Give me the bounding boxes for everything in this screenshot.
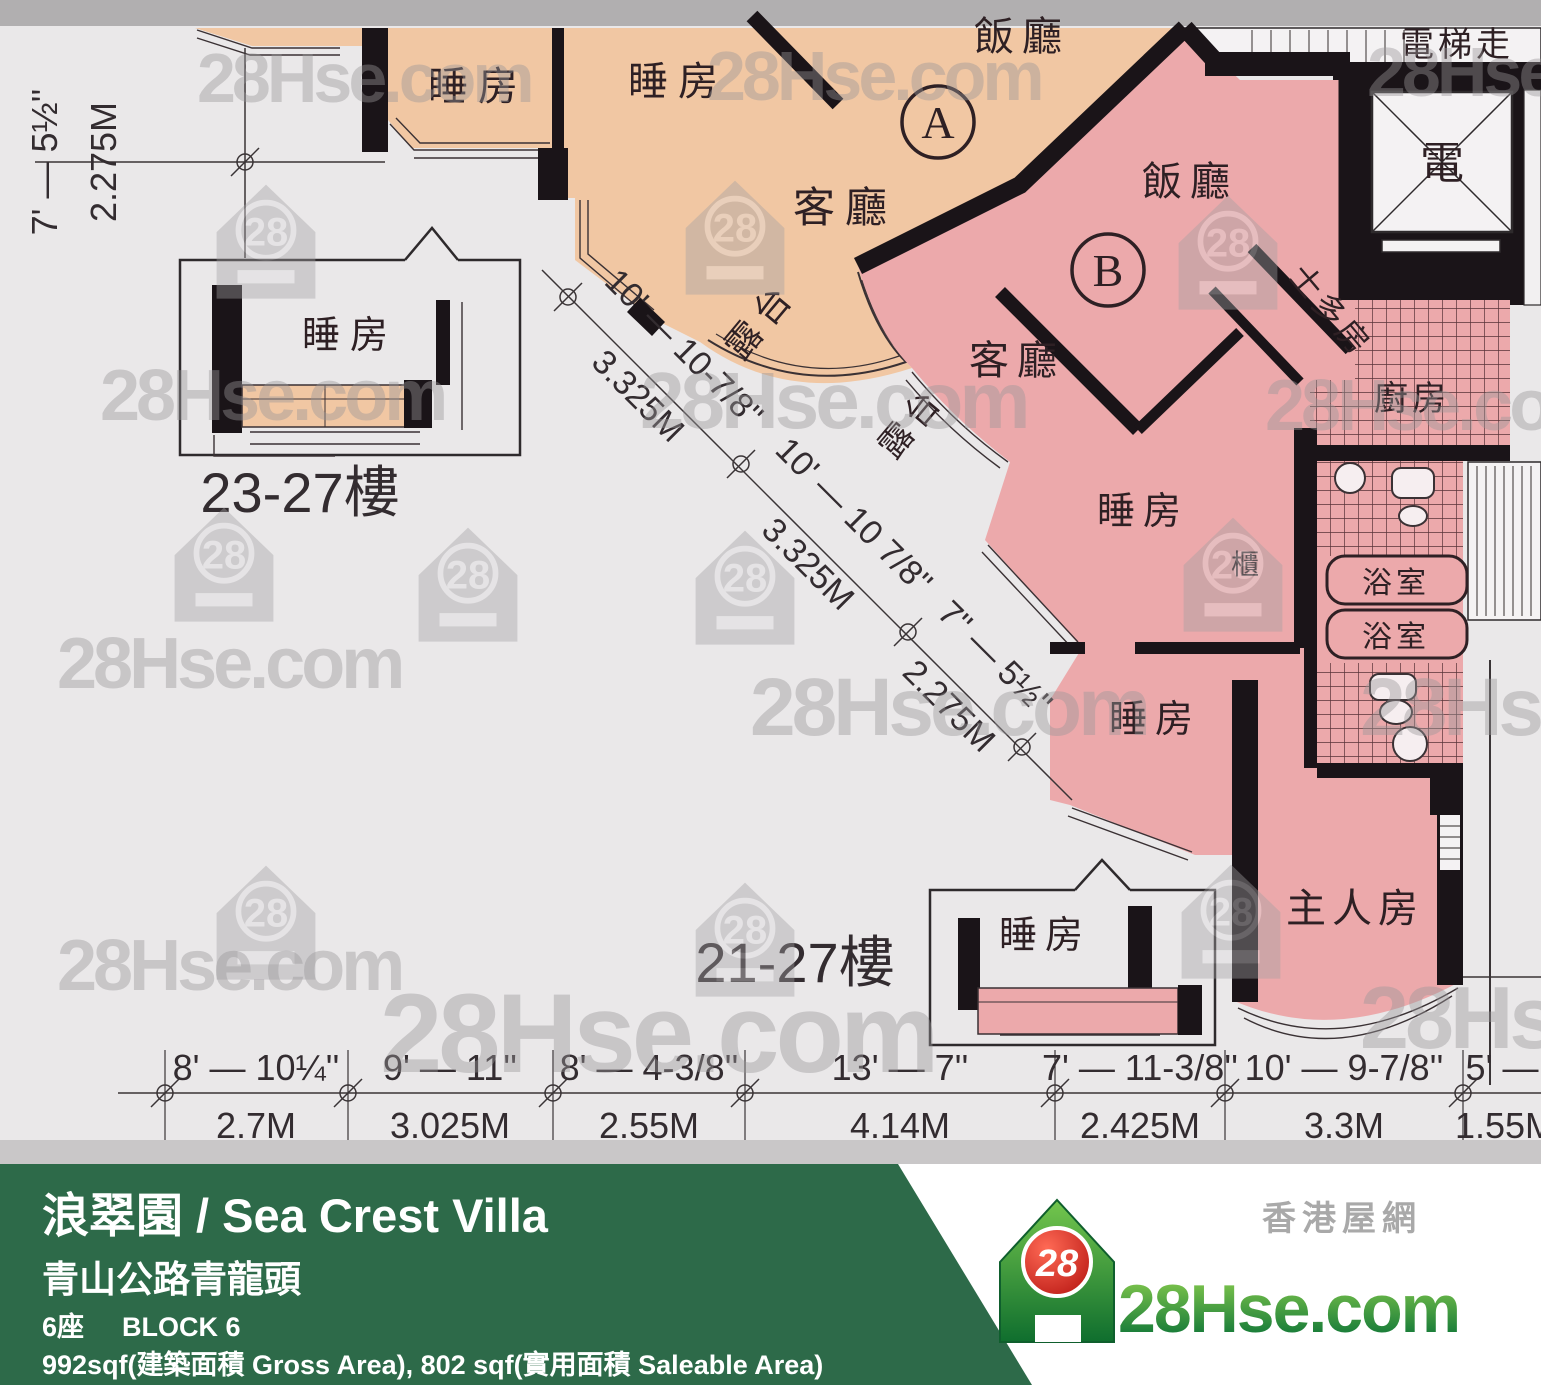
dim-bottom-3-m: 4.14M xyxy=(850,1105,950,1146)
estate-title: 浪翠園 / Sea Crest Villa xyxy=(42,1189,549,1242)
room-label-electrical: 電 xyxy=(1420,139,1464,188)
watermark-text: 28Hse.com xyxy=(1367,33,1541,111)
watermark-text: 28Hse.com xyxy=(57,926,401,1006)
watermark-text: 28Hse.com xyxy=(197,39,531,117)
room-label-living-a: 客廳 xyxy=(793,185,897,232)
dim-left-m: 2.275M xyxy=(83,102,124,222)
room-label-bathroom-2: 浴室 xyxy=(1362,621,1430,654)
watermark-text: 28Hse.com xyxy=(1360,662,1541,753)
logo-badge-number: 28 xyxy=(1035,1243,1079,1285)
unit-b-badge: B xyxy=(1093,245,1124,296)
footer-gray-band xyxy=(0,1140,1541,1164)
room-label-master: 主人房 xyxy=(1286,886,1424,931)
watermark-text: 28Hse.com xyxy=(57,624,401,704)
floor-plan-scan: 28 電梯走 電 xyxy=(0,0,1541,1385)
footer-bar: 浪翠園 / Sea Crest Villa 青山公路青龍頭 6座 BLOCK 6… xyxy=(0,1140,1541,1385)
watermark-text: 28Hse.com xyxy=(1360,968,1541,1067)
watermark-text: 28Hse.com xyxy=(100,356,444,436)
estate-address: 青山公路青龍頭 xyxy=(42,1259,302,1300)
estate-block-zh: 6座 xyxy=(42,1311,84,1342)
dim-bottom-0-ft: 8' — 10¼'' xyxy=(173,1047,340,1088)
dim-bottom-0-m: 2.7M xyxy=(216,1105,296,1146)
room-label-bathroom-1: 浴室 xyxy=(1362,567,1430,600)
room-label-bedroom-b1: 睡房 xyxy=(1097,491,1189,533)
dim-bottom-5-m: 3.3M xyxy=(1304,1105,1384,1146)
scan-top-band xyxy=(0,0,1541,26)
watermark-text: 28Hse.com xyxy=(380,971,935,1096)
dim-bottom-2-m: 2.55M xyxy=(599,1105,699,1146)
watermark-text: 28Hse.com xyxy=(640,356,1026,445)
inset-21-27-bedroom-label: 睡房 xyxy=(999,915,1091,957)
floor-plan-scan-page: 28 電梯走 電 xyxy=(0,0,1541,1385)
watermark-text: 28Hse.com xyxy=(1265,366,1541,446)
logo-brand-text: 28Hse.com xyxy=(1118,1271,1459,1347)
estate-block-en: BLOCK 6 xyxy=(122,1312,241,1342)
master-window xyxy=(1440,815,1460,870)
logo-tagline: 香港屋網 xyxy=(1262,1200,1422,1238)
inset-23-27-bedroom-label: 睡房 xyxy=(302,315,398,357)
dim-bottom-4-ft: 7' — 11-3/8'' xyxy=(1042,1047,1238,1088)
estate-area: 992sqf(建築面積 Gross Area), 802 sqf(實用面積 Sa… xyxy=(42,1349,823,1380)
dim-bottom-6-m: 1.55M xyxy=(1455,1105,1541,1146)
watermark-text: 28Hse.com xyxy=(750,662,1147,753)
room-label-dining-b: 飯廳 xyxy=(1142,159,1238,204)
watermark-text: 28Hse.com xyxy=(707,37,1041,115)
dim-left-ft: 7' — 5½'' xyxy=(24,89,65,236)
dim-bottom-1-m: 3.025M xyxy=(390,1105,510,1146)
dim-bottom-4-m: 2.425M xyxy=(1080,1105,1200,1146)
